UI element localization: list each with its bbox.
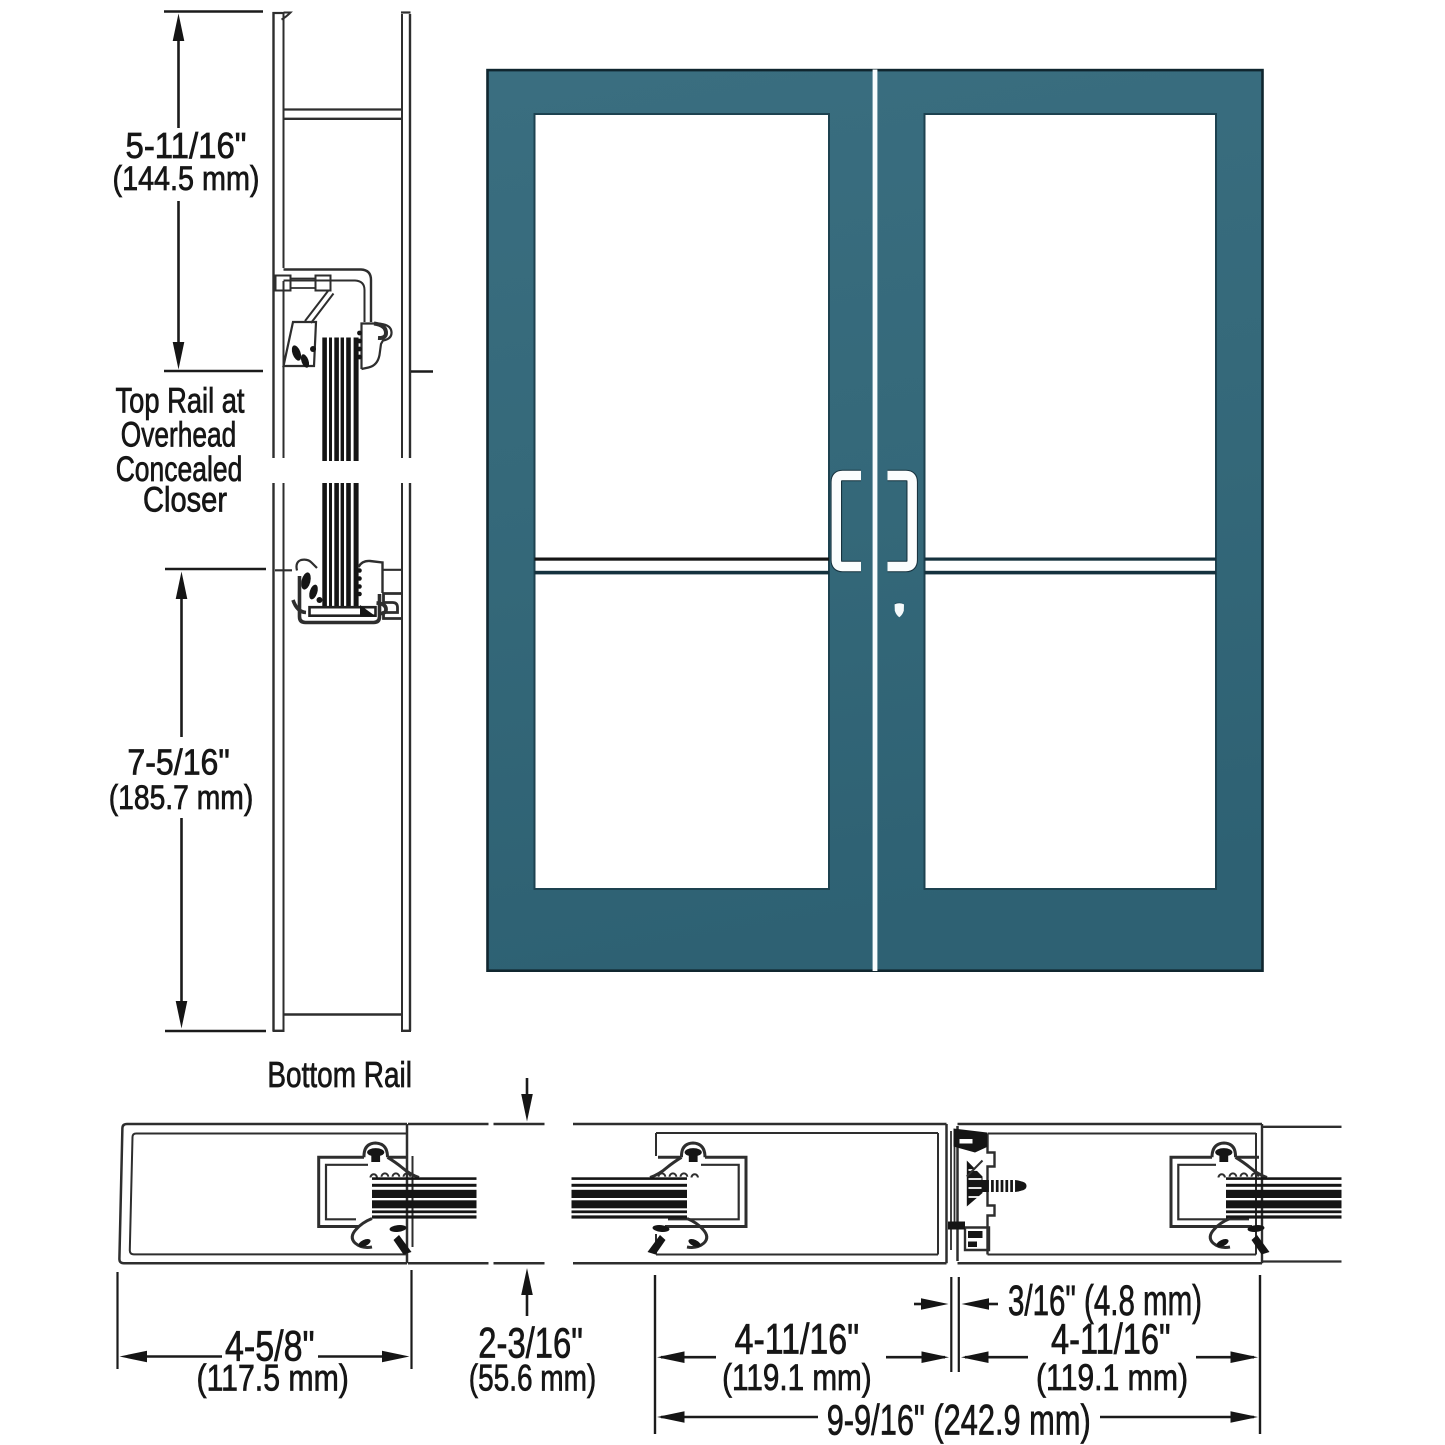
svg-text:(117.5 mm): (117.5 mm) [197, 1358, 349, 1399]
svg-text:7-5/16": 7-5/16" [127, 742, 229, 783]
svg-text:9-9/16" (242.9 mm): 9-9/16" (242.9 mm) [827, 1397, 1091, 1445]
svg-text:(119.1 mm): (119.1 mm) [722, 1357, 872, 1398]
svg-text:(185.7 mm): (185.7 mm) [109, 779, 254, 817]
svg-text:Closer: Closer [143, 481, 227, 520]
svg-text:(144.5 mm): (144.5 mm) [113, 160, 260, 198]
svg-text:Overhead: Overhead [121, 415, 237, 454]
svg-text:(119.1 mm): (119.1 mm) [1036, 1357, 1188, 1398]
svg-text:(55.6 mm): (55.6 mm) [469, 1358, 597, 1399]
svg-text:Bottom Rail: Bottom Rail [267, 1054, 412, 1095]
